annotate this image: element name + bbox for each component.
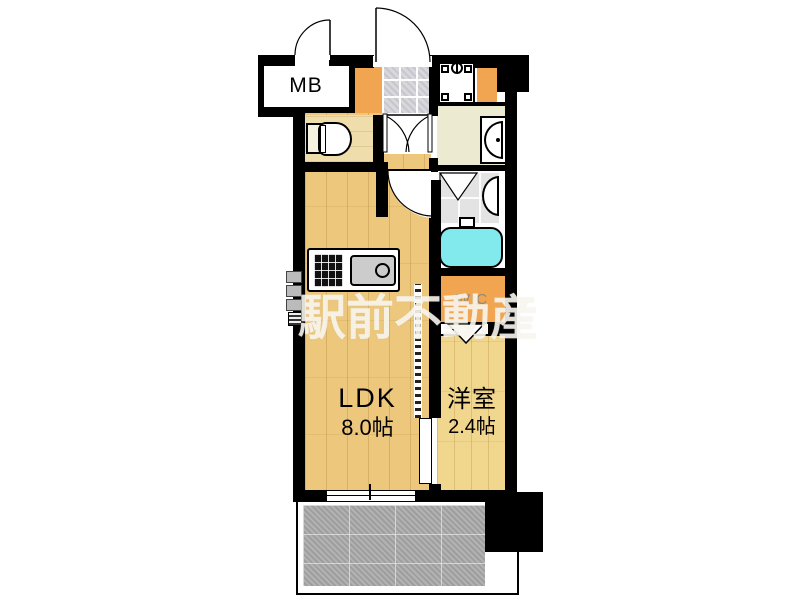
floor-plan: MB — [0, 0, 800, 600]
mb-door-arc — [295, 20, 330, 55]
entrance-door-arc — [373, 8, 432, 67]
watermark: 駅前不動産 — [298, 278, 538, 348]
hallway-double-door-arcs — [383, 114, 432, 154]
bathroom-folding-door — [440, 173, 477, 200]
ldk-door-arc — [385, 170, 431, 218]
